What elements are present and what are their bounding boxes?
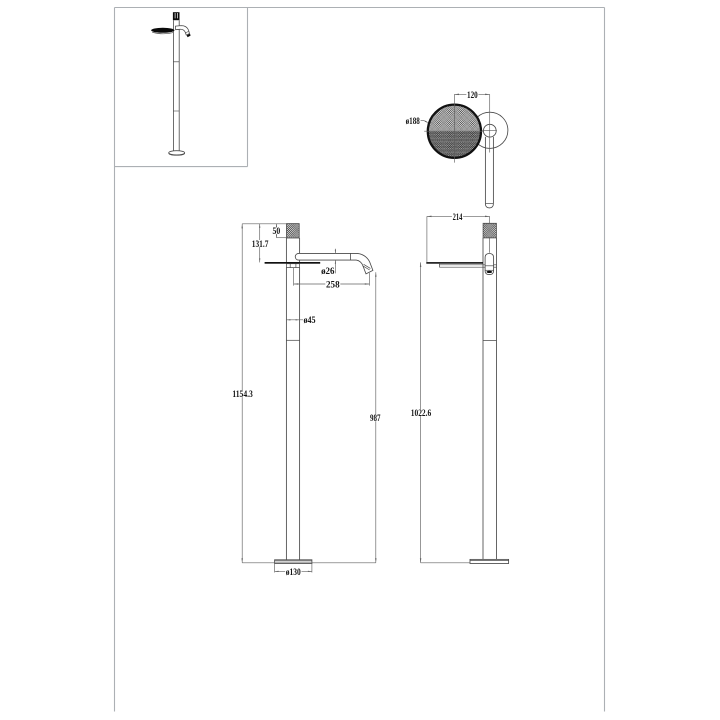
svg-text:258: 258 (326, 280, 340, 290)
svg-text:1022.6: 1022.6 (411, 408, 432, 418)
svg-text:120: 120 (467, 90, 478, 100)
svg-text:50: 50 (273, 226, 281, 236)
svg-text:ø188: ø188 (406, 116, 421, 126)
svg-text:ø26: ø26 (321, 266, 335, 276)
svg-text:1154.3: 1154.3 (232, 389, 253, 399)
svg-text:214: 214 (453, 212, 463, 222)
svg-text:ø45: ø45 (303, 315, 315, 325)
svg-text:ø130: ø130 (286, 567, 301, 577)
svg-text:987: 987 (370, 413, 381, 423)
svg-text:131.7: 131.7 (252, 239, 269, 249)
